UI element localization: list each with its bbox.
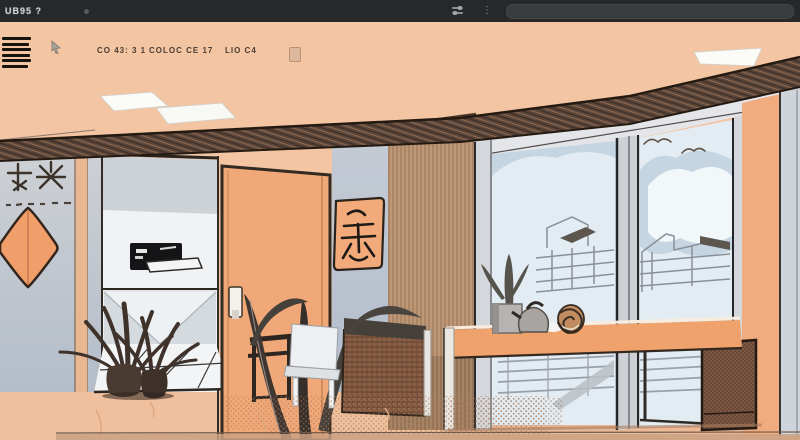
titlebar: UB95 ? ⋮ bbox=[0, 0, 800, 22]
color-swatch-button[interactable] bbox=[289, 47, 301, 62]
wood-cabinet bbox=[702, 340, 756, 430]
door-handle bbox=[232, 310, 239, 319]
framed-artwork bbox=[334, 198, 384, 270]
toolbar-item[interactable]: COLOC CE 17 bbox=[149, 46, 213, 55]
status-dot bbox=[84, 9, 89, 14]
sliders-icon[interactable] bbox=[452, 5, 464, 17]
hamburger-menu-icon[interactable] bbox=[2, 37, 31, 70]
titlebar-field[interactable] bbox=[506, 4, 794, 19]
toolbar: CO 43: 3 1 COLOC CE 17 LIO C4 bbox=[0, 22, 800, 74]
kebab-menu-icon[interactable]: ⋮ bbox=[482, 5, 490, 17]
design-app-window: UB95 ? ⋮ CO 43: 3 1 COLOC CE 17 LIO C4 bbox=[0, 0, 800, 440]
toolbar-item[interactable]: LIO C4 bbox=[225, 46, 257, 55]
toolbar-item[interactable]: CO 43: 3 1 bbox=[97, 46, 146, 55]
white-cloud bbox=[648, 167, 732, 244]
left-wall bbox=[0, 155, 75, 392]
snail-shell bbox=[558, 305, 584, 333]
app-logo: UB95 ? bbox=[5, 6, 42, 16]
window-mullion bbox=[616, 135, 640, 430]
